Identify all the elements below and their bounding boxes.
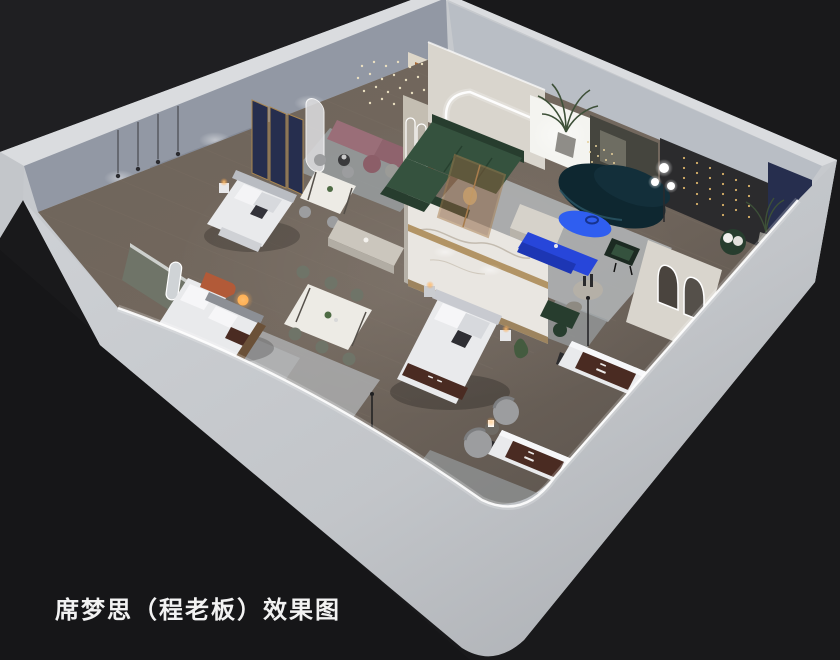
caption-text: 席梦思（程老板）效果图: [55, 596, 341, 624]
showroom-render: 席梦思（程老板）效果图: [0, 0, 840, 660]
isometric-scene: 席梦思（程老板）效果图: [0, 0, 840, 660]
green-armchair: [720, 229, 746, 255]
